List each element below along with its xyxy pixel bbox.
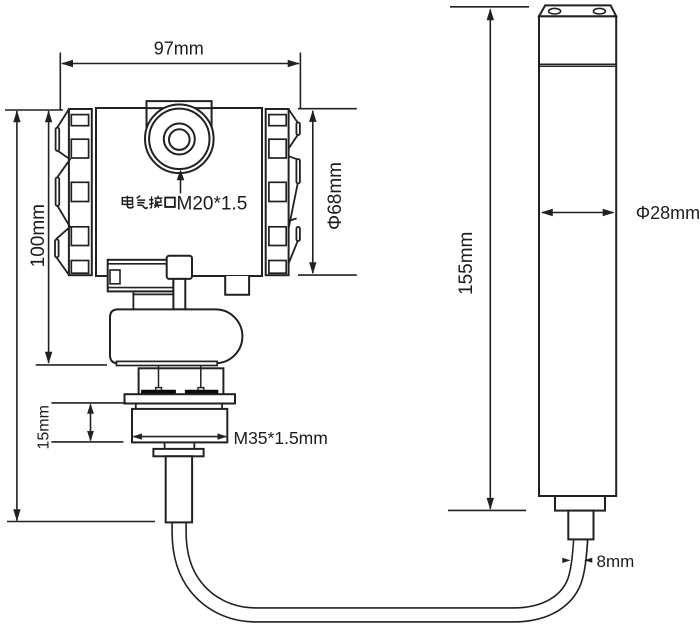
svg-text:155mm: 155mm xyxy=(456,232,477,295)
svg-text:Φ28mm: Φ28mm xyxy=(636,203,700,223)
svg-text:100mm: 100mm xyxy=(28,204,49,267)
svg-text:Φ68mm: Φ68mm xyxy=(325,162,346,230)
svg-text:M35*1.5mm: M35*1.5mm xyxy=(234,428,328,448)
svg-text:97mm: 97mm xyxy=(154,38,204,58)
svg-text:8mm: 8mm xyxy=(597,552,635,571)
svg-text:M20*1.5: M20*1.5 xyxy=(177,193,248,214)
svg-text:15mm: 15mm xyxy=(35,405,52,449)
